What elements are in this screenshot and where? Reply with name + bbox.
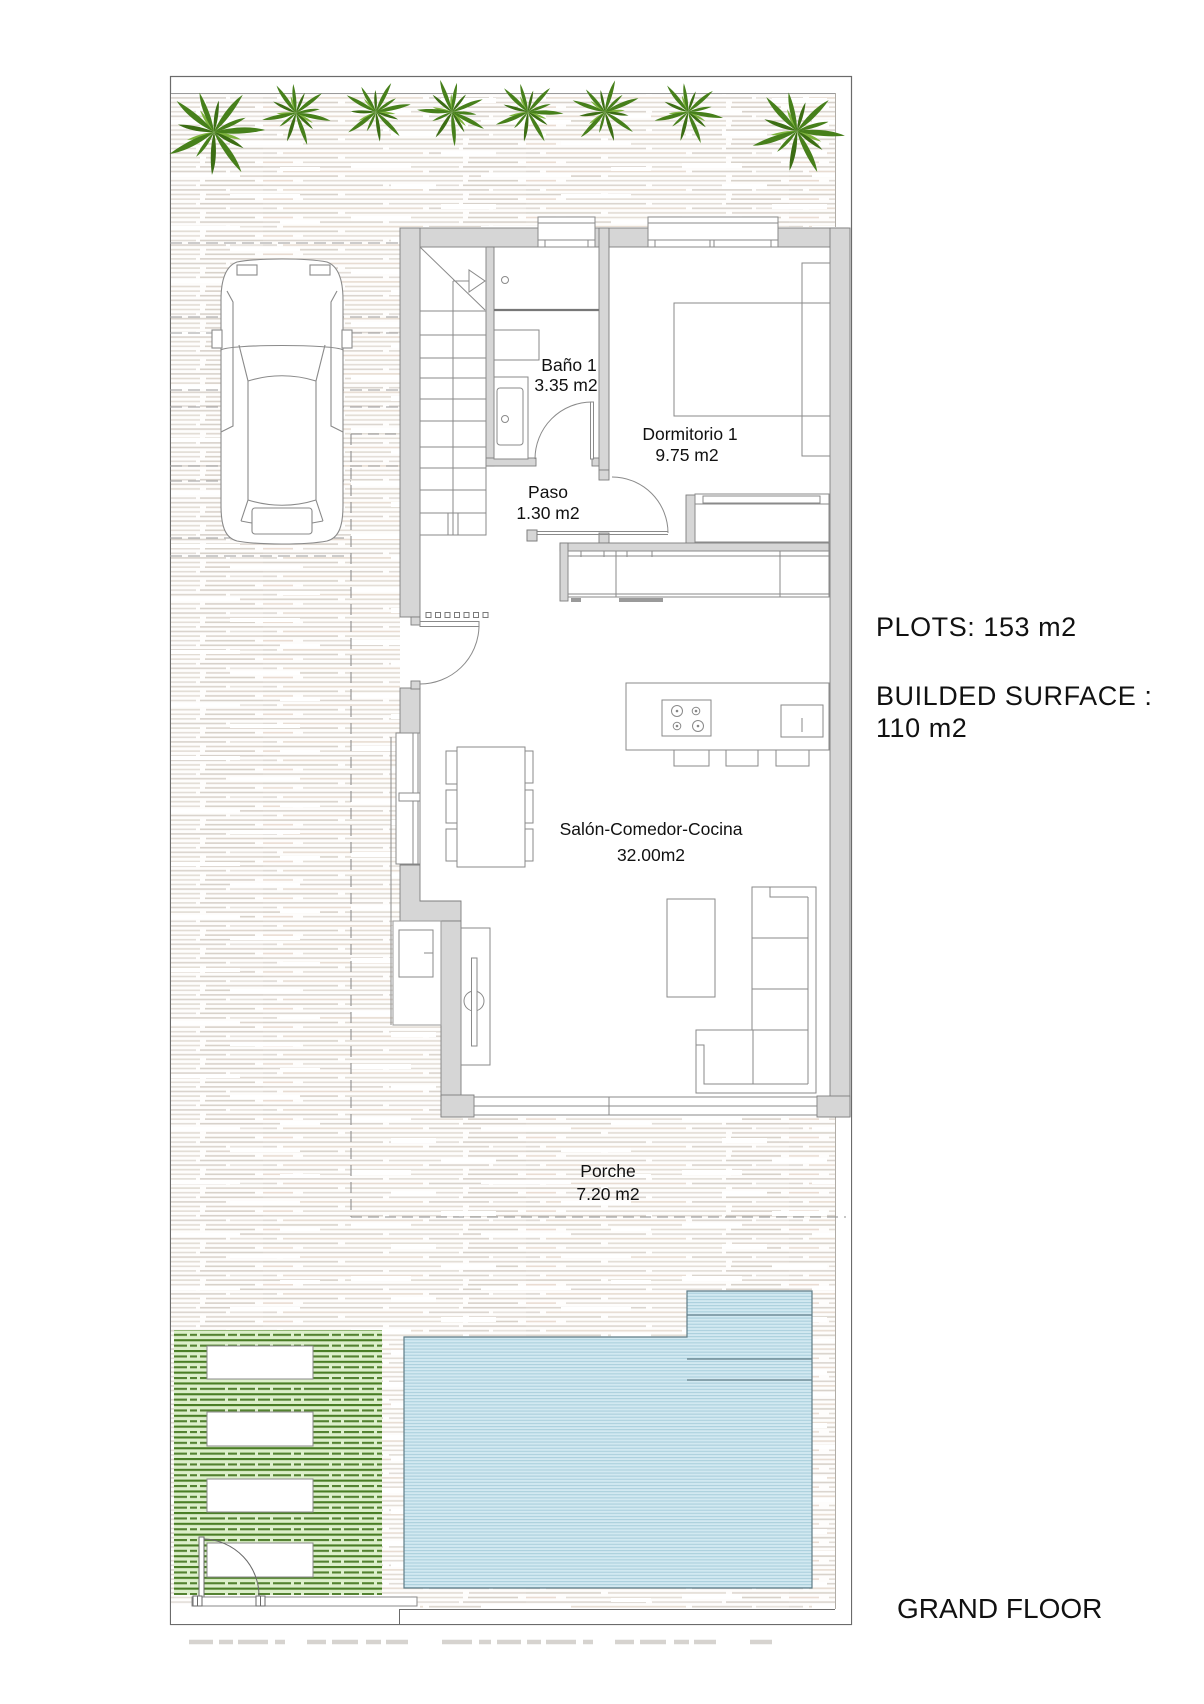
svg-text:Salón-Comedor-Cocina: Salón-Comedor-Cocina	[560, 819, 743, 839]
svg-text:Baño 1: Baño 1	[541, 355, 596, 375]
svg-text:3.35 m2: 3.35 m2	[534, 375, 597, 395]
svg-text:GRAND FLOOR: GRAND FLOOR	[897, 1593, 1102, 1624]
svg-text:Paso: Paso	[528, 482, 568, 502]
svg-text:32.00m2: 32.00m2	[617, 845, 685, 865]
svg-text:110 m2: 110 m2	[876, 713, 967, 743]
svg-text:9.75 m2: 9.75 m2	[655, 445, 718, 465]
svg-text:7.20 m2: 7.20 m2	[576, 1184, 639, 1204]
svg-text:PLOTS: 153 m2: PLOTS: 153 m2	[876, 612, 1077, 642]
svg-text:Porche: Porche	[580, 1161, 635, 1181]
svg-text:Dormitorio 1: Dormitorio 1	[642, 424, 737, 444]
svg-text:1.30 m2: 1.30 m2	[516, 503, 579, 523]
svg-text:BUILDED SURFACE :: BUILDED SURFACE :	[876, 681, 1152, 711]
